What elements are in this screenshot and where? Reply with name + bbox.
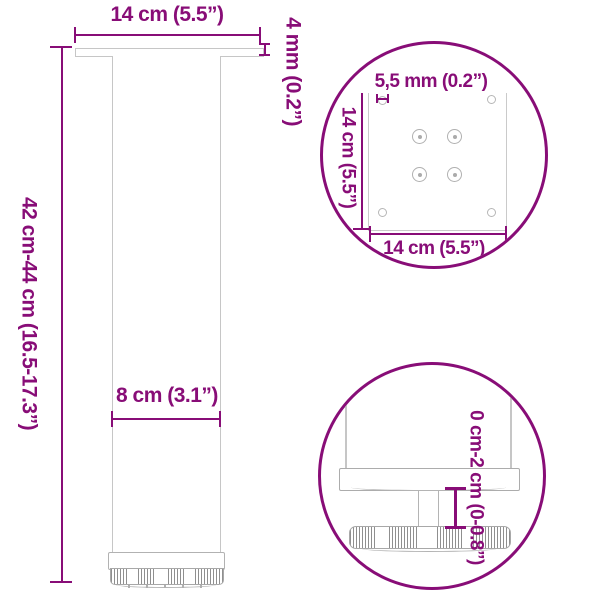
leg-tube xyxy=(112,56,221,552)
tube-width-dim-tick-right xyxy=(219,411,221,427)
foot-tube-left-edge xyxy=(345,393,347,468)
screw-hole-center xyxy=(418,173,422,177)
plate-width-dim-tick-left xyxy=(74,27,76,43)
mounting-plate-top-view xyxy=(368,81,507,231)
foot-stem xyxy=(418,490,439,530)
plate-depth-label: 14 cm (5.5”) xyxy=(337,77,358,237)
screw-hole-center xyxy=(453,135,457,139)
screw-hole xyxy=(412,167,427,182)
foot-detail-circle: 0 cm-2 cm (0-0.8”) xyxy=(318,362,546,590)
tube-width-dim-tick-left xyxy=(111,411,113,427)
corner-hole xyxy=(487,95,496,104)
screw-hole xyxy=(447,167,462,182)
plate-width-dim-line xyxy=(75,34,261,36)
hole-diameter-label: 5,5 mm (0.2”) xyxy=(340,72,522,93)
leg-height-dim-tick-top xyxy=(50,46,72,48)
product-dimension-diagram: 14 cm (5.5”) 4 mm (0.2”) 42 cm-44 cm (16… xyxy=(0,0,600,600)
plate-width-label: 14 cm (5.5”) xyxy=(56,3,278,26)
adjustment-range-label: 0 cm-2 cm (0-0.8”) xyxy=(465,387,486,587)
adjustment-line xyxy=(454,488,457,528)
tube-width-label: 8 cm (3.1”) xyxy=(94,384,240,407)
thickness-line xyxy=(264,44,266,55)
foot-tube-right-edge xyxy=(510,393,512,468)
plate-top-width-dim-line xyxy=(370,233,507,235)
plate-thickness-label: 4 mm (0.2”) xyxy=(281,2,304,142)
screw-hole-center xyxy=(453,173,457,177)
leg-height-label: 42 cm-44 cm (16.5-17.3”) xyxy=(17,154,40,474)
screw-hole xyxy=(447,129,462,144)
tube-width-dim-line xyxy=(112,418,221,420)
hole-marker-line xyxy=(376,98,389,100)
corner-hole xyxy=(487,208,496,217)
leg-height-dim-line xyxy=(61,47,63,583)
plate-depth-dim-line xyxy=(361,81,363,229)
screw-hole xyxy=(412,129,427,144)
screw-hole-center xyxy=(418,135,422,139)
corner-hole xyxy=(378,208,387,217)
plate-top-width-label: 14 cm (5.5”) xyxy=(343,239,525,260)
leg-base-dashes xyxy=(128,585,208,588)
plate-top-detail-circle: 14 cm (5.5”) 5,5 mm (0.2”) 14 cm (5.5”) xyxy=(320,41,548,269)
plate-width-dim-tick-right xyxy=(259,27,261,43)
leg-height-dim-tick-bottom xyxy=(50,581,72,583)
